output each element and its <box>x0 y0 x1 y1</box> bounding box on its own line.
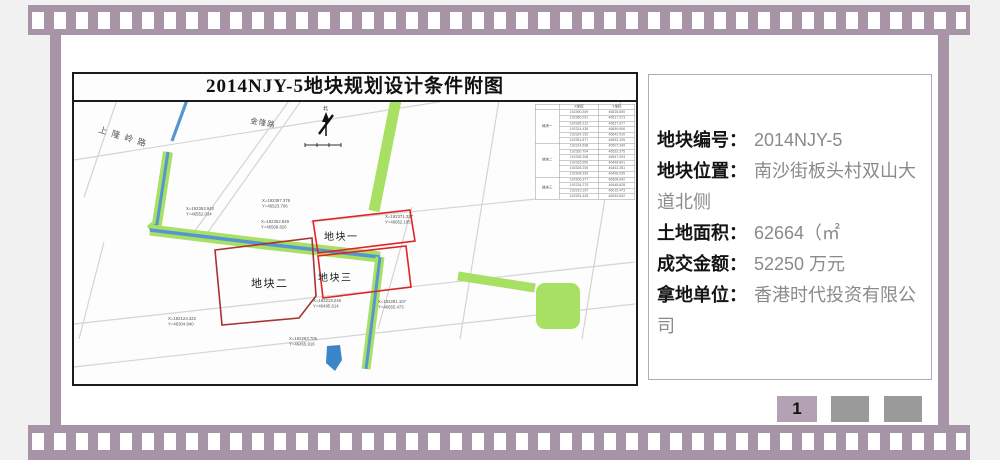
street-line <box>460 102 500 339</box>
coordinate-annotation: X=192219.245 <box>313 298 342 303</box>
north-label: 北 <box>323 105 328 112</box>
coordinate-annotation: X=192293.706 <box>289 336 318 341</box>
coordinate-table: X坐标Y坐标地块一192390.30946528.690192350.02146… <box>535 104 635 206</box>
coordinate-annotation: Y=46455.916 <box>289 342 315 347</box>
info-field: 地块编号：2014NJY-5 <box>657 125 923 156</box>
coordinate-annotation: Y=46508.826 <box>261 225 287 230</box>
film-strip-top <box>28 5 970 35</box>
film-strip-left-rail <box>50 33 61 427</box>
road-label-shanglongling: 上隆岭路 <box>97 124 152 149</box>
street-line <box>79 242 104 339</box>
page-button-1[interactable]: 1 <box>777 396 817 422</box>
parcel-info-panel: 地块编号：2014NJY-5地块位置：南沙街板头村双山大道北侧土地面积：6266… <box>648 74 932 380</box>
coordinate-annotation: Y=46552.034 <box>186 212 212 217</box>
coordinate-annotation: X=192363.940 <box>186 206 215 211</box>
coordinate-annotation: Y=46655.473 <box>378 305 404 310</box>
coord-table-row: 地块一192390.30946528.690 <box>535 110 635 116</box>
info-field-label: 成交金额： <box>657 254 747 274</box>
info-field-label: 地块位置： <box>657 161 747 181</box>
page: 2014NJY-5地块规划设计条件附图 <box>0 0 1000 460</box>
coord-table-row: 地块三192306.37746508.642 <box>535 177 635 183</box>
film-strip-right-rail <box>938 33 949 427</box>
coordinate-annotation: X=192397.378 <box>262 198 291 203</box>
planning-map-document: 2014NJY-5地块规划设计条件附图 <box>72 72 638 386</box>
parcel-2-label: 地块二 <box>251 277 289 290</box>
info-field: 地块位置：南沙街板头村双山大道北侧 <box>657 156 923 218</box>
river <box>172 102 187 141</box>
info-field: 土地面积：62664（㎡ <box>657 218 923 249</box>
coordinate-annotation: Y=46304.840 <box>168 322 194 327</box>
info-field-value: 52250 万元 <box>754 254 845 274</box>
parcel-1-label: 地块一 <box>324 230 359 243</box>
coordinate-annotation: Y=46652.195 <box>385 220 411 225</box>
green-park <box>536 283 580 329</box>
film-strip-bottom <box>28 425 970 460</box>
info-field: 拿地单位：香港时代投资有限公司 <box>657 280 923 342</box>
coordinate-annotation: X=192371.327 <box>385 214 414 219</box>
pond <box>326 345 342 371</box>
scale-bar <box>305 143 341 147</box>
coordinate-annotation: X=192124.322 <box>168 316 197 321</box>
film-sprocket-holes <box>32 12 966 29</box>
coordinate-annotation: X=192352.849 <box>261 219 290 224</box>
greenbelt-strip <box>374 102 396 211</box>
info-field: 成交金额：52250 万元 <box>657 249 923 280</box>
coordinate-annotation: Y=46495.614 <box>313 304 339 309</box>
info-field-value: 2014NJY-5 <box>754 130 842 150</box>
coordinate-annotation: Y=46523.706 <box>262 204 288 209</box>
info-field-value: 62664（㎡ <box>754 223 840 243</box>
info-field-label: 土地面积： <box>657 223 747 243</box>
parcel-3-label: 地块三 <box>318 271 353 284</box>
coordinate-annotation: X=192281.107 <box>378 299 407 304</box>
map-title: 2014NJY-5地块规划设计条件附图 <box>74 74 636 102</box>
greenbelt-and-water-layer <box>150 102 580 371</box>
coord-table-row: 地块二192314.53846507.349 <box>535 143 635 149</box>
info-field-label: 拿地单位： <box>657 285 747 305</box>
planning-map: 北 上隆岭路 金隆路 地块一 地块二 地块三 <box>74 102 636 384</box>
info-field-label: 地块编号： <box>657 130 747 150</box>
canal-south <box>366 257 380 369</box>
page-button-2[interactable] <box>831 396 869 422</box>
street-line <box>84 102 119 197</box>
road-label-jinlong: 金隆路 <box>250 115 277 129</box>
film-sprocket-holes <box>32 433 966 450</box>
page-button-3[interactable] <box>884 396 922 422</box>
greenbelt-strip-east <box>458 276 535 288</box>
